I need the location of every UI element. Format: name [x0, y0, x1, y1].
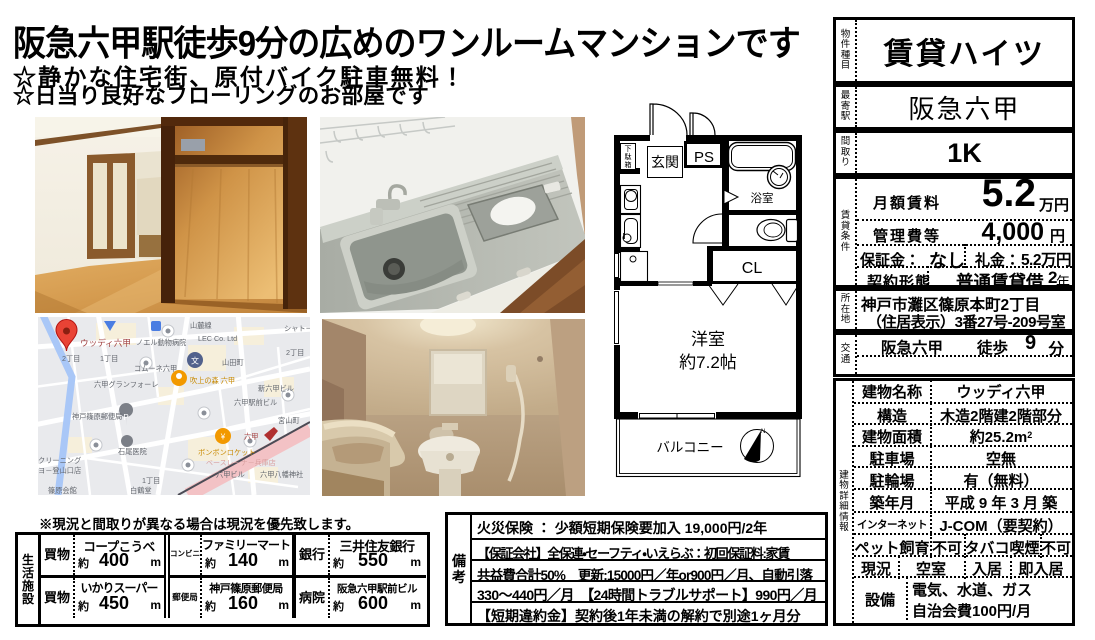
svg-text:ノエル動物病院: ノエル動物病院 — [136, 338, 186, 347]
svg-text:六甲ビル: 六甲ビル — [216, 470, 245, 479]
svg-text:コムーネ六甲: コムーネ六甲 — [134, 364, 177, 373]
svg-text:ヨ－登山口店: ヨ－登山口店 — [38, 466, 81, 475]
svg-text:LEC Co. Ltd: LEC Co. Ltd — [198, 334, 237, 343]
svg-text:約7.2帖: 約7.2帖 — [679, 353, 737, 372]
svg-text:玄関: 玄関 — [651, 154, 679, 170]
svg-text:洋室: 洋室 — [691, 330, 725, 349]
svg-text:CL: CL — [742, 260, 763, 277]
svg-text:1丁目: 1丁目 — [142, 476, 160, 485]
svg-text:篠原会館: 篠原会館 — [48, 486, 77, 495]
svg-text:神戸篠原郵便局: 神戸篠原郵便局 — [72, 412, 122, 421]
svg-text:宮山町: 宮山町 — [278, 416, 300, 425]
svg-text:白鶴堂: 白鶴堂 — [130, 486, 152, 495]
svg-text:浴室: 浴室 — [751, 192, 774, 205]
svg-text:六甲グランフォーレ: 六甲グランフォーレ — [94, 380, 158, 389]
svg-text:文: 文 — [191, 356, 199, 366]
svg-text:PS: PS — [694, 149, 714, 166]
svg-text:シャトー: シャトー — [284, 324, 310, 333]
svg-text:N: N — [761, 429, 765, 435]
svg-text:六甲八幡神社: 六甲八幡神社 — [260, 470, 303, 479]
svg-text:新六甲ビル: 新六甲ビル — [258, 384, 294, 393]
svg-text:ボンボンロケット: ボンボンロケット — [198, 448, 256, 457]
svg-text:バルコニー: バルコニー — [656, 440, 723, 455]
svg-text:石尾医院: 石尾医院 — [118, 447, 147, 456]
svg-text:¥: ¥ — [220, 433, 226, 442]
svg-text:六甲: 六甲 — [244, 432, 258, 441]
svg-text:P: P — [123, 413, 128, 422]
svg-text:2丁目: 2丁目 — [286, 348, 304, 357]
svg-text:山田町: 山田町 — [222, 358, 244, 367]
svg-text:下駄箱: 下駄箱 — [625, 145, 632, 169]
svg-text:ウッディ六甲: ウッディ六甲 — [80, 337, 131, 348]
svg-text:1丁目: 1丁目 — [100, 354, 118, 363]
svg-text:2丁目: 2丁目 — [62, 354, 80, 363]
svg-text:山麓線: 山麓線 — [190, 321, 212, 330]
svg-text:六甲駅前ビル: 六甲駅前ビル — [234, 398, 277, 407]
svg-text:吹上の森 六甲: 吹上の森 六甲 — [190, 376, 235, 385]
svg-text:ベースレ－ナ－兵庫店: ベースレ－ナ－兵庫店 — [206, 458, 276, 467]
svg-text:クリーニング: クリーニング — [38, 456, 81, 465]
